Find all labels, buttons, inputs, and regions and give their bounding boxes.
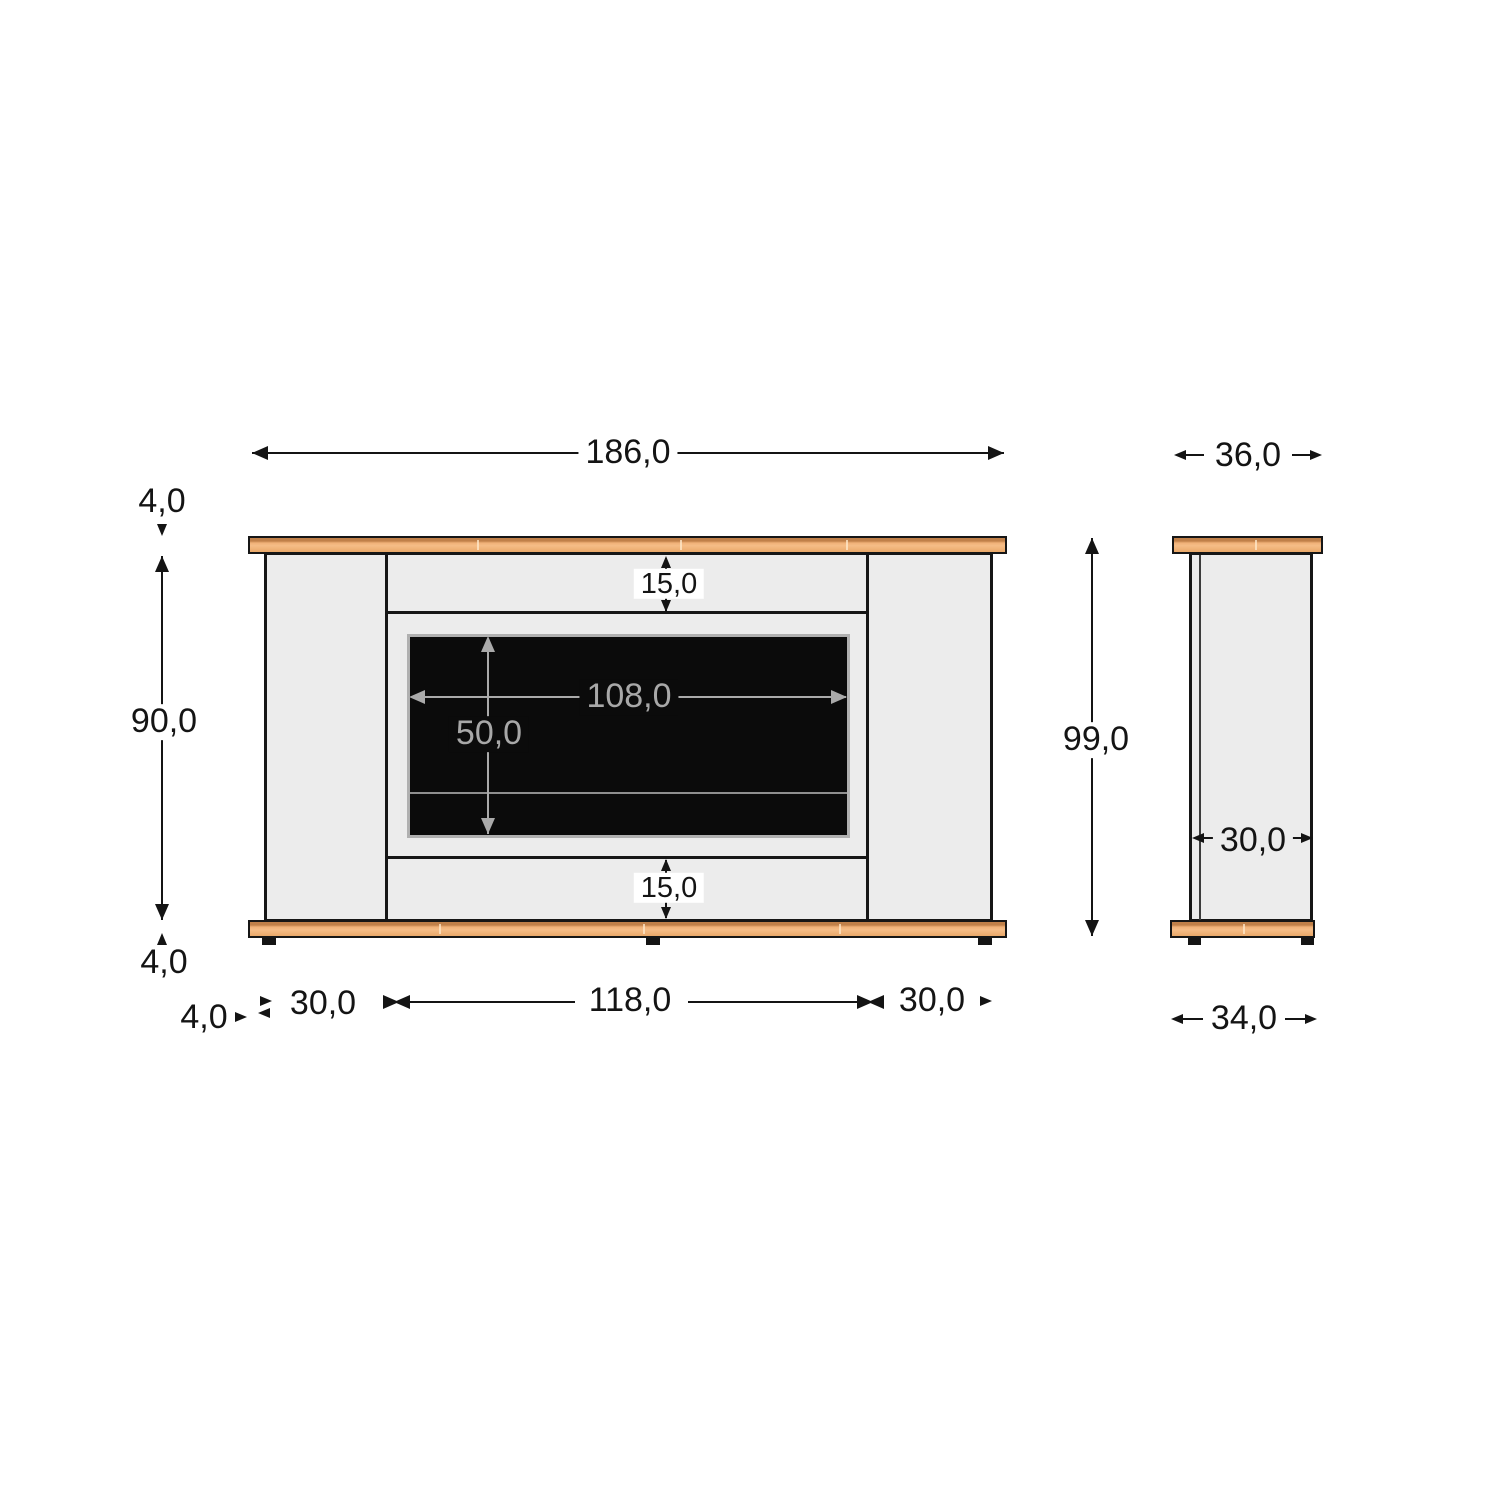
wood-seam	[643, 924, 645, 934]
wood-seam	[839, 924, 841, 934]
arrow-down-icon	[661, 907, 671, 919]
dim-base-depth-tail-right	[1285, 1018, 1305, 1020]
dim-inset-top-label: 15,0	[634, 569, 704, 599]
arrow-up-icon	[661, 556, 671, 568]
side-base-plinth	[1170, 920, 1315, 938]
dim-overhang-label: 4,0	[178, 1000, 229, 1036]
arrow-right-icon	[260, 996, 272, 1006]
arrow-right-icon	[235, 1012, 247, 1022]
arrow-down-icon	[481, 818, 495, 834]
arrow-left-icon	[258, 1008, 270, 1018]
dim-total-height-label: 99,0	[1056, 722, 1136, 758]
wood-seam	[1255, 540, 1257, 550]
dim-top-depth-label: 36,0	[1213, 438, 1283, 474]
side-front-board-line	[1199, 555, 1201, 920]
dim-firebox-height-label: 50,0	[449, 716, 529, 752]
arrow-left-icon	[1192, 833, 1204, 843]
dim-top-thickness-label: 4,0	[136, 484, 187, 520]
pillar-divider-right	[866, 555, 869, 920]
arrow-up-icon	[661, 859, 671, 871]
arrow-up-icon	[1085, 538, 1099, 554]
arrow-down-icon	[1085, 920, 1099, 936]
side-foot-front	[1188, 938, 1201, 945]
side-foot-back	[1301, 938, 1314, 945]
firebox-fuelbed-line	[410, 792, 847, 794]
front-base-plinth	[248, 920, 1007, 938]
arrow-right-icon	[831, 690, 847, 704]
arrow-down-icon	[661, 600, 671, 612]
arrow-right-icon	[1301, 833, 1313, 843]
arrow-right-icon	[980, 996, 992, 1006]
dim-front-width-label: 186,0	[578, 435, 677, 471]
inset-line-bottom	[388, 856, 866, 859]
dim-center-width-line-left	[403, 1001, 575, 1003]
dim-top-depth-tail-right	[1292, 454, 1310, 456]
arrow-left-icon	[1174, 450, 1186, 460]
arrow-up-icon	[155, 556, 169, 572]
arrow-up-icon	[481, 636, 495, 652]
pillar-divider-left	[385, 555, 388, 920]
dim-center-width-line-right	[688, 1001, 860, 1003]
dim-bottom-thickness-label: 4,0	[138, 945, 189, 981]
dim-center-width-label: 118,0	[582, 983, 679, 1019]
wood-seam	[846, 540, 848, 550]
arrow-down-icon	[157, 524, 167, 536]
arrow-right-icon	[1310, 450, 1322, 460]
arrow-left-icon	[868, 995, 884, 1009]
arrow-down-icon	[155, 904, 169, 920]
wood-seam	[1243, 924, 1245, 934]
dimension-drawing-canvas: 186,0 4,0 90,0 4,0 15,0 15,0 108,0 50,0 …	[0, 0, 1500, 1500]
dim-base-depth-label: 34,0	[1209, 1001, 1279, 1037]
wood-seam	[439, 924, 441, 934]
arrow-left-icon	[252, 446, 268, 460]
dim-body-depth-label: 30,0	[1213, 823, 1293, 859]
arrow-left-icon	[1171, 1014, 1183, 1024]
front-foot-center	[646, 938, 660, 945]
wood-seam	[477, 540, 479, 550]
arrow-left-icon	[409, 690, 425, 704]
dim-firebox-width-label: 108,0	[579, 679, 678, 715]
side-body-panel	[1189, 552, 1313, 922]
dim-inset-bottom-label: 15,0	[634, 873, 704, 903]
arrow-right-icon	[988, 446, 1004, 460]
wood-seam	[680, 540, 682, 550]
inset-line-top	[388, 611, 866, 614]
arrow-right-icon	[1305, 1014, 1317, 1024]
dim-right-pillar-label: 30,0	[897, 983, 967, 1019]
dim-body-height-label: 90,0	[124, 704, 204, 740]
front-foot-right	[978, 938, 992, 945]
front-foot-left	[262, 938, 276, 945]
dim-left-pillar-label: 30,0	[288, 986, 358, 1022]
dim-top-depth-tail-left	[1186, 454, 1204, 456]
dim-base-depth-tail-left	[1183, 1018, 1203, 1020]
